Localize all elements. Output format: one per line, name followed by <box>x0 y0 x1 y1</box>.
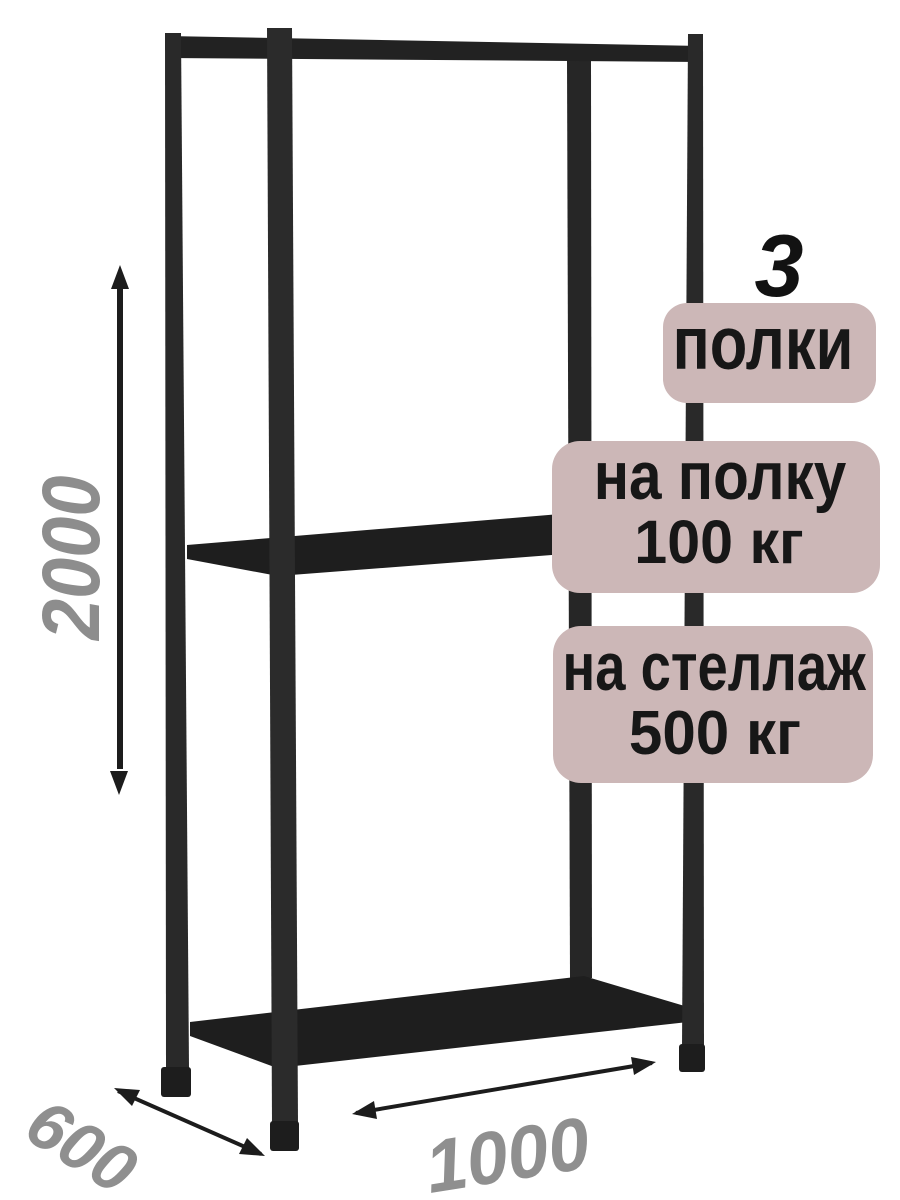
svg-text:2000: 2000 <box>27 475 117 641</box>
svg-text:100 кг: 100 кг <box>634 508 803 576</box>
svg-text:3: 3 <box>755 216 804 315</box>
svg-text:на стеллаж: на стеллаж <box>562 629 866 705</box>
svg-text:500 кг: 500 кг <box>629 698 801 767</box>
svg-text:на полку: на полку <box>594 439 847 514</box>
svg-text:полки: полки <box>673 301 854 385</box>
